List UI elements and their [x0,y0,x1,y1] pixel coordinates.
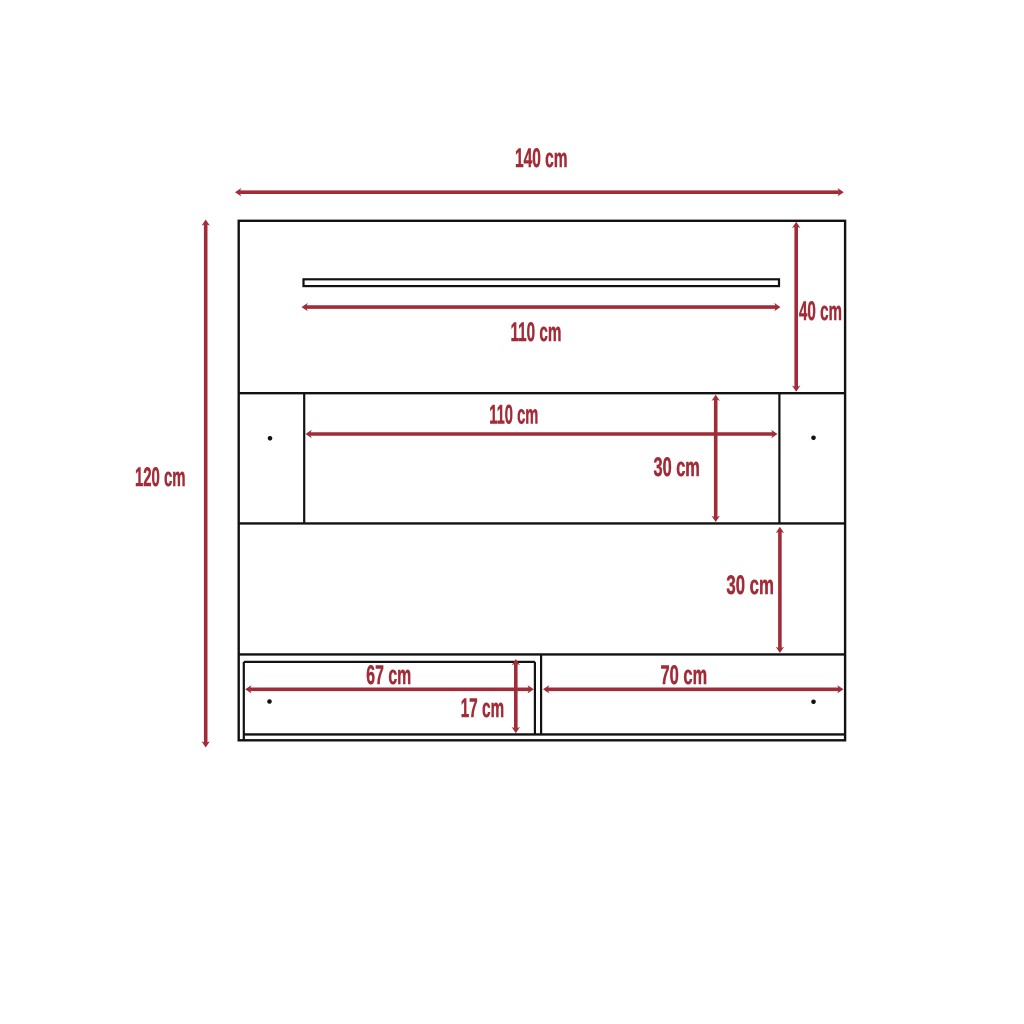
svg-text:17 cm: 17 cm [461,693,505,723]
svg-text:120 cm: 120 cm [135,462,186,492]
svg-text:67 cm: 67 cm [366,660,411,690]
svg-text:110 cm: 110 cm [489,399,538,429]
svg-text:140 cm: 140 cm [515,143,568,173]
svg-text:30 cm: 30 cm [654,452,700,482]
svg-text:40 cm: 40 cm [799,296,842,326]
svg-text:110 cm: 110 cm [511,317,562,347]
svg-text:30 cm: 30 cm [726,570,774,600]
svg-text:70 cm: 70 cm [661,660,708,690]
